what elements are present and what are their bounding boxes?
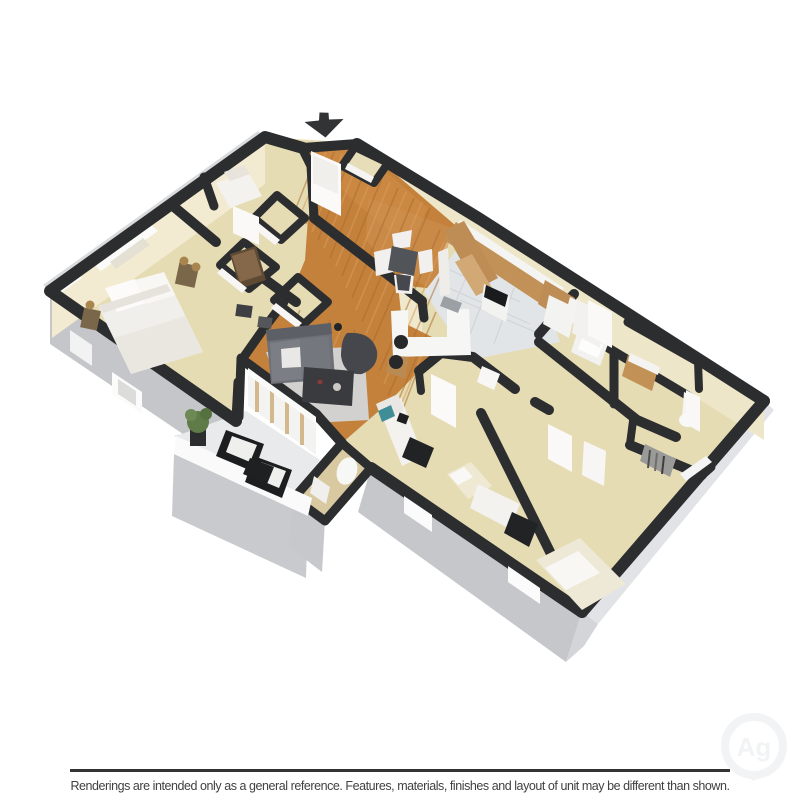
svg-text:Ag: Ag [737,732,772,762]
